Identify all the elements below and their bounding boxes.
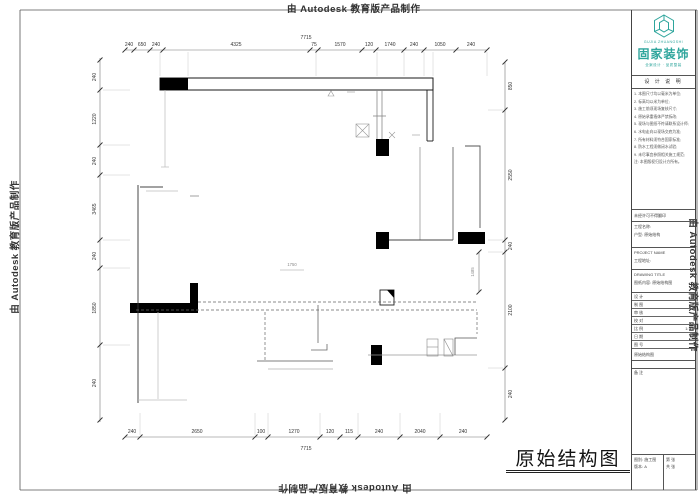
note-line: 1. 本图尺寸均以毫米为单位; [634, 90, 690, 97]
svg-text:240: 240 [92, 73, 98, 82]
notes-header: 设 计 说 明 [632, 76, 695, 89]
remark-cell: 备 注 [632, 369, 695, 455]
svg-text:240: 240 [125, 42, 134, 48]
field-number: 图 号 [632, 341, 695, 349]
svg-text:240: 240 [92, 379, 98, 388]
project-line: 户型: 原始结构 [634, 231, 693, 239]
dimension-lines [100, 50, 505, 437]
dim-bottom-overall: 7715 [300, 446, 311, 452]
note-line: 7. 所有材料须符合国家标准; [634, 136, 690, 143]
note-line: 8. 防水工程须做闭水试验; [634, 143, 690, 150]
field-checker: 校 对 [632, 317, 695, 325]
l-wall-stub [190, 283, 198, 305]
svg-text:1570: 1570 [334, 42, 345, 48]
note-line: 4. 原始承重墙体严禁拆改; [634, 113, 690, 120]
cell-line: 图别: 施工图 [634, 456, 661, 463]
extension-lines [103, 52, 503, 435]
svg-text:1850: 1850 [92, 302, 98, 313]
annotation-marks [328, 91, 420, 138]
note-line: 6. 水电走向以现场交底为准; [634, 128, 690, 135]
sheet-title-row: 原始结构图 [632, 349, 695, 361]
svg-text:240: 240 [375, 429, 384, 435]
logo-subtitle-bottom: 全案设计 · 品质整装 [634, 63, 693, 68]
field-scale: 比 例 1:75 [632, 325, 695, 333]
field-label: 图 号 [634, 342, 643, 348]
svg-text:115: 115 [345, 429, 353, 435]
svg-text:850: 850 [508, 82, 514, 91]
column-top-left [160, 78, 188, 90]
bottom-split-cell: 图别: 施工图 版本: A 第 张 共 张 [632, 455, 695, 490]
svg-text:1220: 1220 [92, 113, 98, 124]
field-label: 审 核 [634, 310, 643, 316]
svg-text:120: 120 [365, 42, 374, 48]
svg-text:4325: 4325 [230, 42, 241, 48]
svg-text:2040: 2040 [414, 429, 425, 435]
l-wall-horizontal [130, 303, 198, 313]
watermark-top: 由 Autodesk 教育版产品制作 [287, 1, 421, 15]
cell-line: PROJECT NAME [634, 249, 693, 257]
svg-text:240: 240 [459, 429, 468, 435]
column [458, 232, 485, 244]
construction-lines [138, 90, 187, 400]
svg-text:120: 120 [326, 429, 335, 435]
field-label: 日 期 [634, 334, 643, 340]
dimension-ticks [98, 48, 508, 440]
svg-text:2100: 2100 [508, 304, 514, 315]
cell-line: 版本: A [634, 463, 661, 470]
fixtures [427, 339, 453, 356]
svg-text:240: 240 [467, 42, 476, 48]
interior-partitions [140, 187, 477, 369]
watermark-left: 由 Autodesk 教育版产品制作 [7, 137, 21, 357]
svg-text:240: 240 [92, 157, 98, 166]
title-block: GUJIA ZHUANGSHI 固家装饰 全案设计 · 品质整装 设 计 说 明… [631, 10, 696, 490]
svg-text:3465: 3465 [92, 203, 98, 214]
note-line: 5. 现场与图纸不符请联系设计师; [634, 120, 690, 127]
column [376, 139, 389, 156]
copyright-row: 未经许可不得翻印 [632, 210, 695, 222]
logo-hexagon-icon [651, 13, 677, 39]
svg-text:75: 75 [311, 42, 317, 48]
svg-text:240: 240 [92, 252, 98, 261]
spacer-row [632, 361, 695, 369]
project-name-cell: PROJECT NAME 工程地址: [632, 248, 695, 270]
interior-labels: 1750 1485 [287, 262, 475, 277]
svg-text:240: 240 [508, 390, 514, 399]
bottom-left-cell: 图别: 施工图 版本: A [632, 455, 664, 490]
company-name: 固家装饰 [634, 45, 693, 62]
shaft-symbol [380, 290, 394, 305]
svg-text:240: 240 [128, 429, 137, 435]
project-cell: 工程名称: 户型: 原始结构 [632, 222, 695, 248]
interior-wall-upper [373, 90, 386, 139]
note-line: 3. 施工前须现场复核尺寸; [634, 105, 690, 112]
interior-dim-label: 1750 [287, 262, 297, 267]
note-line: 注: 本图版权归设计方所有。 [634, 158, 690, 165]
right-bracket-wall [465, 146, 480, 228]
floor-plan-canvas: 7715 240 650 240 4325 75 1570 120 1740 2… [0, 0, 700, 501]
cell-line: 工程地址: [634, 257, 693, 265]
dimension-texts: 7715 240 650 240 4325 75 1570 120 1740 2… [92, 35, 514, 452]
column [376, 232, 389, 249]
note-line: 9. 未尽事宜参照相关施工规范; [634, 151, 690, 158]
project-line: 工程名称: [634, 223, 693, 231]
field-label: 制 图 [634, 302, 643, 308]
bottom-right-cell: 第 张 共 张 [664, 455, 695, 490]
field-label: 比 例 [634, 326, 643, 332]
field-reviewer: 审 核 [632, 309, 695, 317]
drawing-title: 原始结构图 [506, 444, 630, 471]
note-line: 2. 标高均以米为单位; [634, 98, 690, 105]
svg-text:2650: 2650 [191, 429, 202, 435]
svg-text:240: 240 [410, 42, 419, 48]
field-date: 日 期 [632, 333, 695, 341]
svg-text:240: 240 [152, 42, 161, 48]
dim-top-overall: 7715 [300, 35, 311, 41]
drawing-content-cell: DRAWING TITLE 图纸内容: 原始结构图 [632, 270, 695, 293]
svg-text:100: 100 [257, 429, 266, 435]
walls [130, 78, 485, 403]
cell-line: 第 张 [666, 456, 693, 463]
interior-dim-label: 1485 [470, 267, 475, 277]
top-wall [160, 78, 433, 90]
svg-text:1740: 1740 [384, 42, 395, 48]
cell-line: 图纸内容: 原始结构图 [634, 279, 693, 287]
cell-line: 共 张 [666, 463, 693, 470]
field-drafter: 制 图 [632, 301, 695, 309]
fixture-symbol [427, 339, 438, 356]
svg-text:1270: 1270 [288, 429, 299, 435]
notes-block: 1. 本图尺寸均以毫米为单位; 2. 标高均以米为单位; 3. 施工前须现场复核… [632, 89, 695, 210]
field-label: 设 计 [634, 294, 643, 300]
field-value: 1:75 [685, 326, 693, 331]
cell-line: DRAWING TITLE [634, 271, 693, 279]
logo-subtitle-top: GUJIA ZHUANGSHI [634, 40, 693, 44]
triangle-mark [328, 91, 334, 96]
svg-text:650: 650 [138, 42, 147, 48]
company-logo: GUJIA ZHUANGSHI 固家装饰 全案设计 · 品质整装 [632, 10, 695, 76]
field-label: 校 对 [634, 318, 643, 324]
svg-text:2550: 2550 [508, 169, 514, 180]
watermark-bottom: 由 Autodesk 教育版产品制作 [278, 482, 412, 496]
svg-text:1050: 1050 [434, 42, 445, 48]
svg-text:240: 240 [508, 242, 514, 251]
field-designer: 设 计 [632, 293, 695, 301]
right-upper-wall [427, 90, 433, 141]
